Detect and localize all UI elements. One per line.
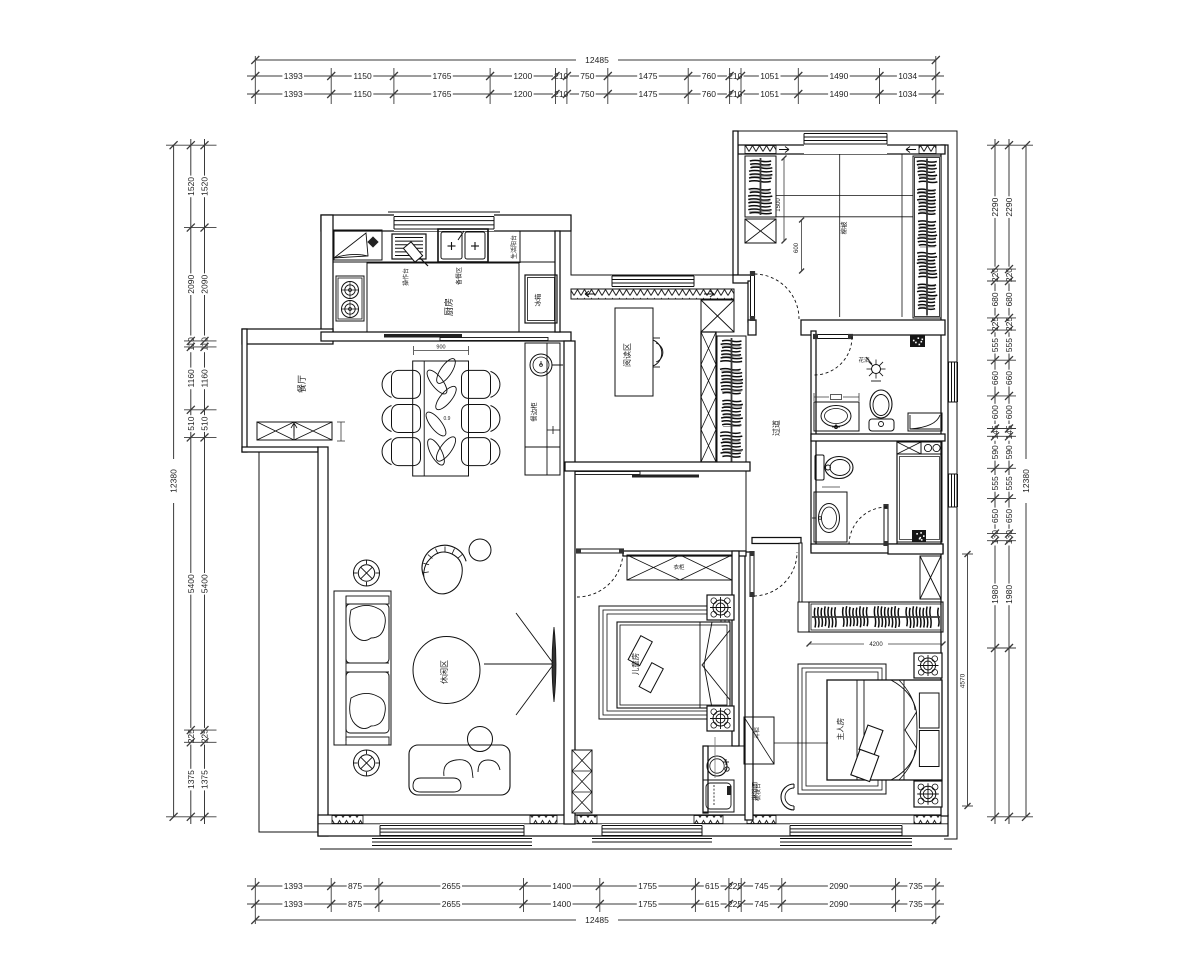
svg-text:1393: 1393 xyxy=(284,71,303,81)
svg-text:2290: 2290 xyxy=(990,197,1000,216)
svg-text:735: 735 xyxy=(909,881,923,891)
svg-text:600: 600 xyxy=(1004,405,1014,419)
svg-text:615: 615 xyxy=(705,881,719,891)
svg-text:555: 555 xyxy=(990,476,1000,490)
svg-text:2090: 2090 xyxy=(829,881,848,891)
svg-text:厨房: 厨房 xyxy=(443,298,454,316)
svg-text:0.9: 0.9 xyxy=(444,416,451,422)
svg-text:680: 680 xyxy=(1004,292,1014,306)
svg-text:650: 650 xyxy=(990,509,1000,523)
svg-text:1200: 1200 xyxy=(513,89,532,99)
svg-text:760: 760 xyxy=(702,89,716,99)
svg-text:1160: 1160 xyxy=(186,369,196,388)
svg-text:1034: 1034 xyxy=(898,71,917,81)
svg-text:操作台: 操作台 xyxy=(402,268,410,286)
svg-text:1400: 1400 xyxy=(552,899,571,909)
svg-text:1375: 1375 xyxy=(186,770,196,789)
svg-text:儿童房: 儿童房 xyxy=(630,653,640,676)
svg-text:600: 600 xyxy=(990,405,1000,419)
svg-text:1500: 1500 xyxy=(776,198,782,212)
svg-text:600: 600 xyxy=(794,242,800,253)
svg-text:2090: 2090 xyxy=(829,899,848,909)
svg-text:1375: 1375 xyxy=(200,770,210,789)
svg-text:1160: 1160 xyxy=(200,369,210,388)
svg-text:760: 760 xyxy=(702,71,716,81)
svg-text:休闲区: 休闲区 xyxy=(439,660,449,684)
svg-text:1051: 1051 xyxy=(760,89,779,99)
svg-text:12485: 12485 xyxy=(585,55,609,65)
svg-text:备餐区: 备餐区 xyxy=(455,267,463,285)
svg-text:510: 510 xyxy=(200,416,210,430)
svg-text:4200: 4200 xyxy=(869,642,883,648)
svg-text:1051: 1051 xyxy=(760,71,779,81)
svg-text:650: 650 xyxy=(1004,509,1014,523)
svg-text:590: 590 xyxy=(1004,445,1014,459)
svg-text:225: 225 xyxy=(728,881,742,891)
svg-text:510: 510 xyxy=(186,416,196,430)
svg-text:2655: 2655 xyxy=(442,881,461,891)
svg-text:斗柜: 斗柜 xyxy=(753,727,761,739)
svg-text:2090: 2090 xyxy=(200,275,210,294)
svg-text:750: 750 xyxy=(580,71,594,81)
svg-text:12380: 12380 xyxy=(1021,469,1031,493)
svg-text:棉被: 棉被 xyxy=(839,221,848,235)
svg-text:555: 555 xyxy=(1004,476,1014,490)
svg-text:1393: 1393 xyxy=(284,89,303,99)
svg-text:1200: 1200 xyxy=(513,71,532,81)
svg-text:1490: 1490 xyxy=(829,71,848,81)
svg-text:660: 660 xyxy=(990,371,1000,385)
svg-text:2090: 2090 xyxy=(186,275,196,294)
svg-text:生活阳台: 生活阳台 xyxy=(510,235,518,259)
svg-text:900: 900 xyxy=(436,345,445,351)
svg-text:1393: 1393 xyxy=(284,899,303,909)
svg-text:1980: 1980 xyxy=(990,585,1000,604)
svg-text:2290: 2290 xyxy=(1004,197,1014,216)
svg-text:餐厅: 餐厅 xyxy=(296,375,307,393)
svg-text:555: 555 xyxy=(990,338,1000,352)
svg-text:4570: 4570 xyxy=(960,673,967,688)
svg-text:1765: 1765 xyxy=(433,89,452,99)
svg-text:875: 875 xyxy=(348,881,362,891)
svg-text:1755: 1755 xyxy=(638,881,657,891)
svg-text:冰箱: 冰箱 xyxy=(533,293,542,307)
svg-text:555: 555 xyxy=(1004,338,1014,352)
svg-text:735: 735 xyxy=(909,899,923,909)
svg-text:745: 745 xyxy=(754,881,768,891)
svg-text:1034: 1034 xyxy=(898,89,917,99)
svg-text:1980: 1980 xyxy=(1004,585,1014,604)
svg-text:875: 875 xyxy=(348,899,362,909)
svg-text:1475: 1475 xyxy=(639,71,658,81)
svg-text:12380: 12380 xyxy=(169,469,179,493)
svg-text:1520: 1520 xyxy=(186,177,196,196)
svg-text:745: 745 xyxy=(754,899,768,909)
svg-text:660: 660 xyxy=(1004,371,1014,385)
svg-text:750: 750 xyxy=(580,89,594,99)
svg-text:1400: 1400 xyxy=(552,881,571,891)
svg-text:过道: 过道 xyxy=(771,420,781,436)
svg-text:主人房: 主人房 xyxy=(835,718,845,741)
svg-text:1150: 1150 xyxy=(353,89,372,99)
svg-text:花洒: 花洒 xyxy=(858,356,870,364)
svg-text:阅读区: 阅读区 xyxy=(622,343,632,367)
svg-text:1765: 1765 xyxy=(433,71,452,81)
svg-text:615: 615 xyxy=(705,899,719,909)
svg-text:1755: 1755 xyxy=(638,899,657,909)
svg-text:1490: 1490 xyxy=(829,89,848,99)
svg-text:225: 225 xyxy=(728,899,742,909)
svg-text:餐边柜: 餐边柜 xyxy=(529,402,538,422)
svg-text:2655: 2655 xyxy=(442,899,461,909)
svg-text:5400: 5400 xyxy=(200,574,210,593)
svg-text:590: 590 xyxy=(990,445,1000,459)
svg-text:680: 680 xyxy=(990,292,1000,306)
svg-text:12485: 12485 xyxy=(585,915,609,925)
svg-text:梳妆台: 梳妆台 xyxy=(754,783,762,801)
svg-text:1393: 1393 xyxy=(284,881,303,891)
svg-text:1150: 1150 xyxy=(353,71,372,81)
svg-text:5400: 5400 xyxy=(186,574,196,593)
svg-text:衣柜: 衣柜 xyxy=(673,563,685,571)
svg-text:1520: 1520 xyxy=(200,177,210,196)
svg-text:1475: 1475 xyxy=(639,89,658,99)
